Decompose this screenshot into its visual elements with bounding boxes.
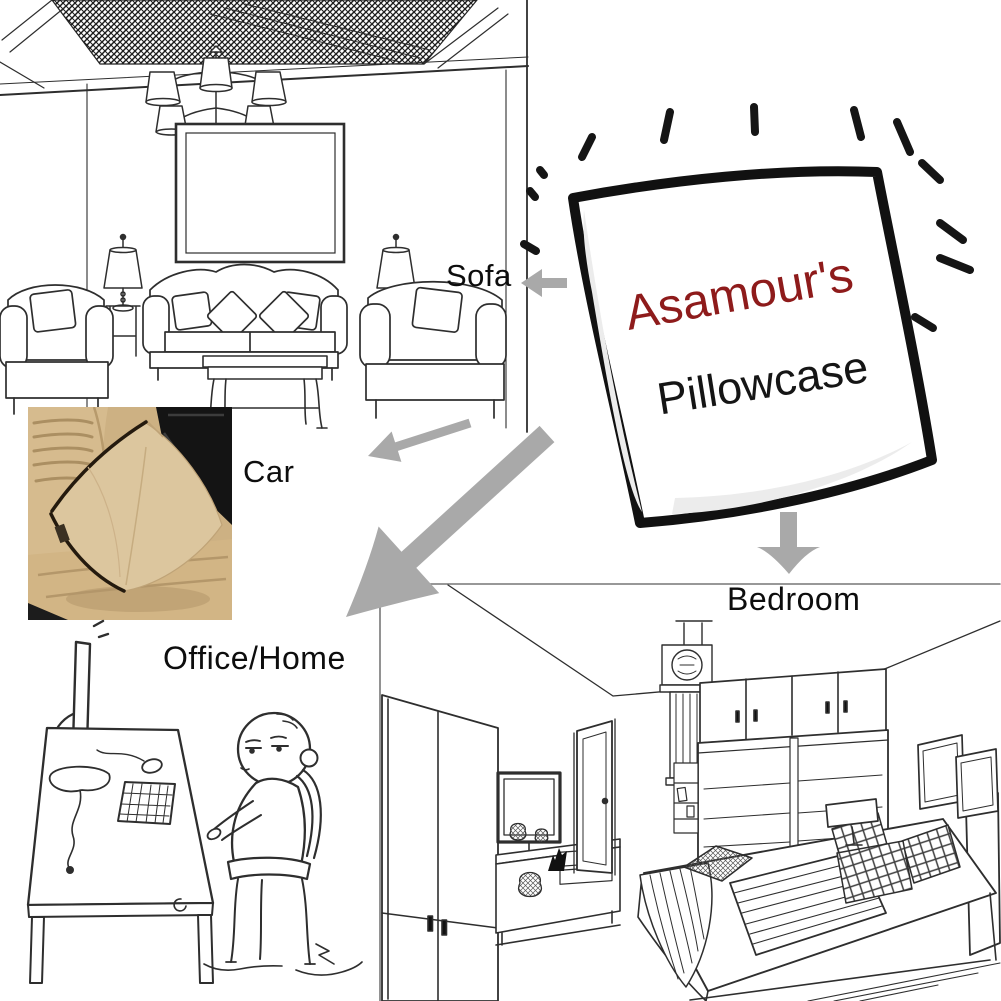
armchair-right [360,282,506,418]
pillow-illustration: Asamour's Pillowcase [520,70,980,530]
bedroom-label: Bedroom [727,581,860,618]
rug [808,963,1000,1001]
product-usage-image: Asamour's Pillowcase [0,0,1001,1001]
door [574,719,615,875]
car-label: Car [243,454,294,490]
wall-tv [498,773,560,850]
sofa-label: Sofa [446,258,512,294]
keyboard [118,782,175,824]
person [206,713,318,865]
pillow-shape [573,171,932,523]
wardrobe-left [382,695,498,1001]
wall-frames [918,735,998,818]
armchair-left [0,285,113,414]
floor-squiggles [204,944,362,975]
picture-frame [176,124,344,262]
bedroom-illustration [378,583,1001,1001]
office-home-label: Office/Home [163,640,346,677]
car-seat-photo [28,407,232,620]
shelf-unit [674,763,698,833]
desk [28,728,213,983]
living-room-illustration [0,0,530,440]
